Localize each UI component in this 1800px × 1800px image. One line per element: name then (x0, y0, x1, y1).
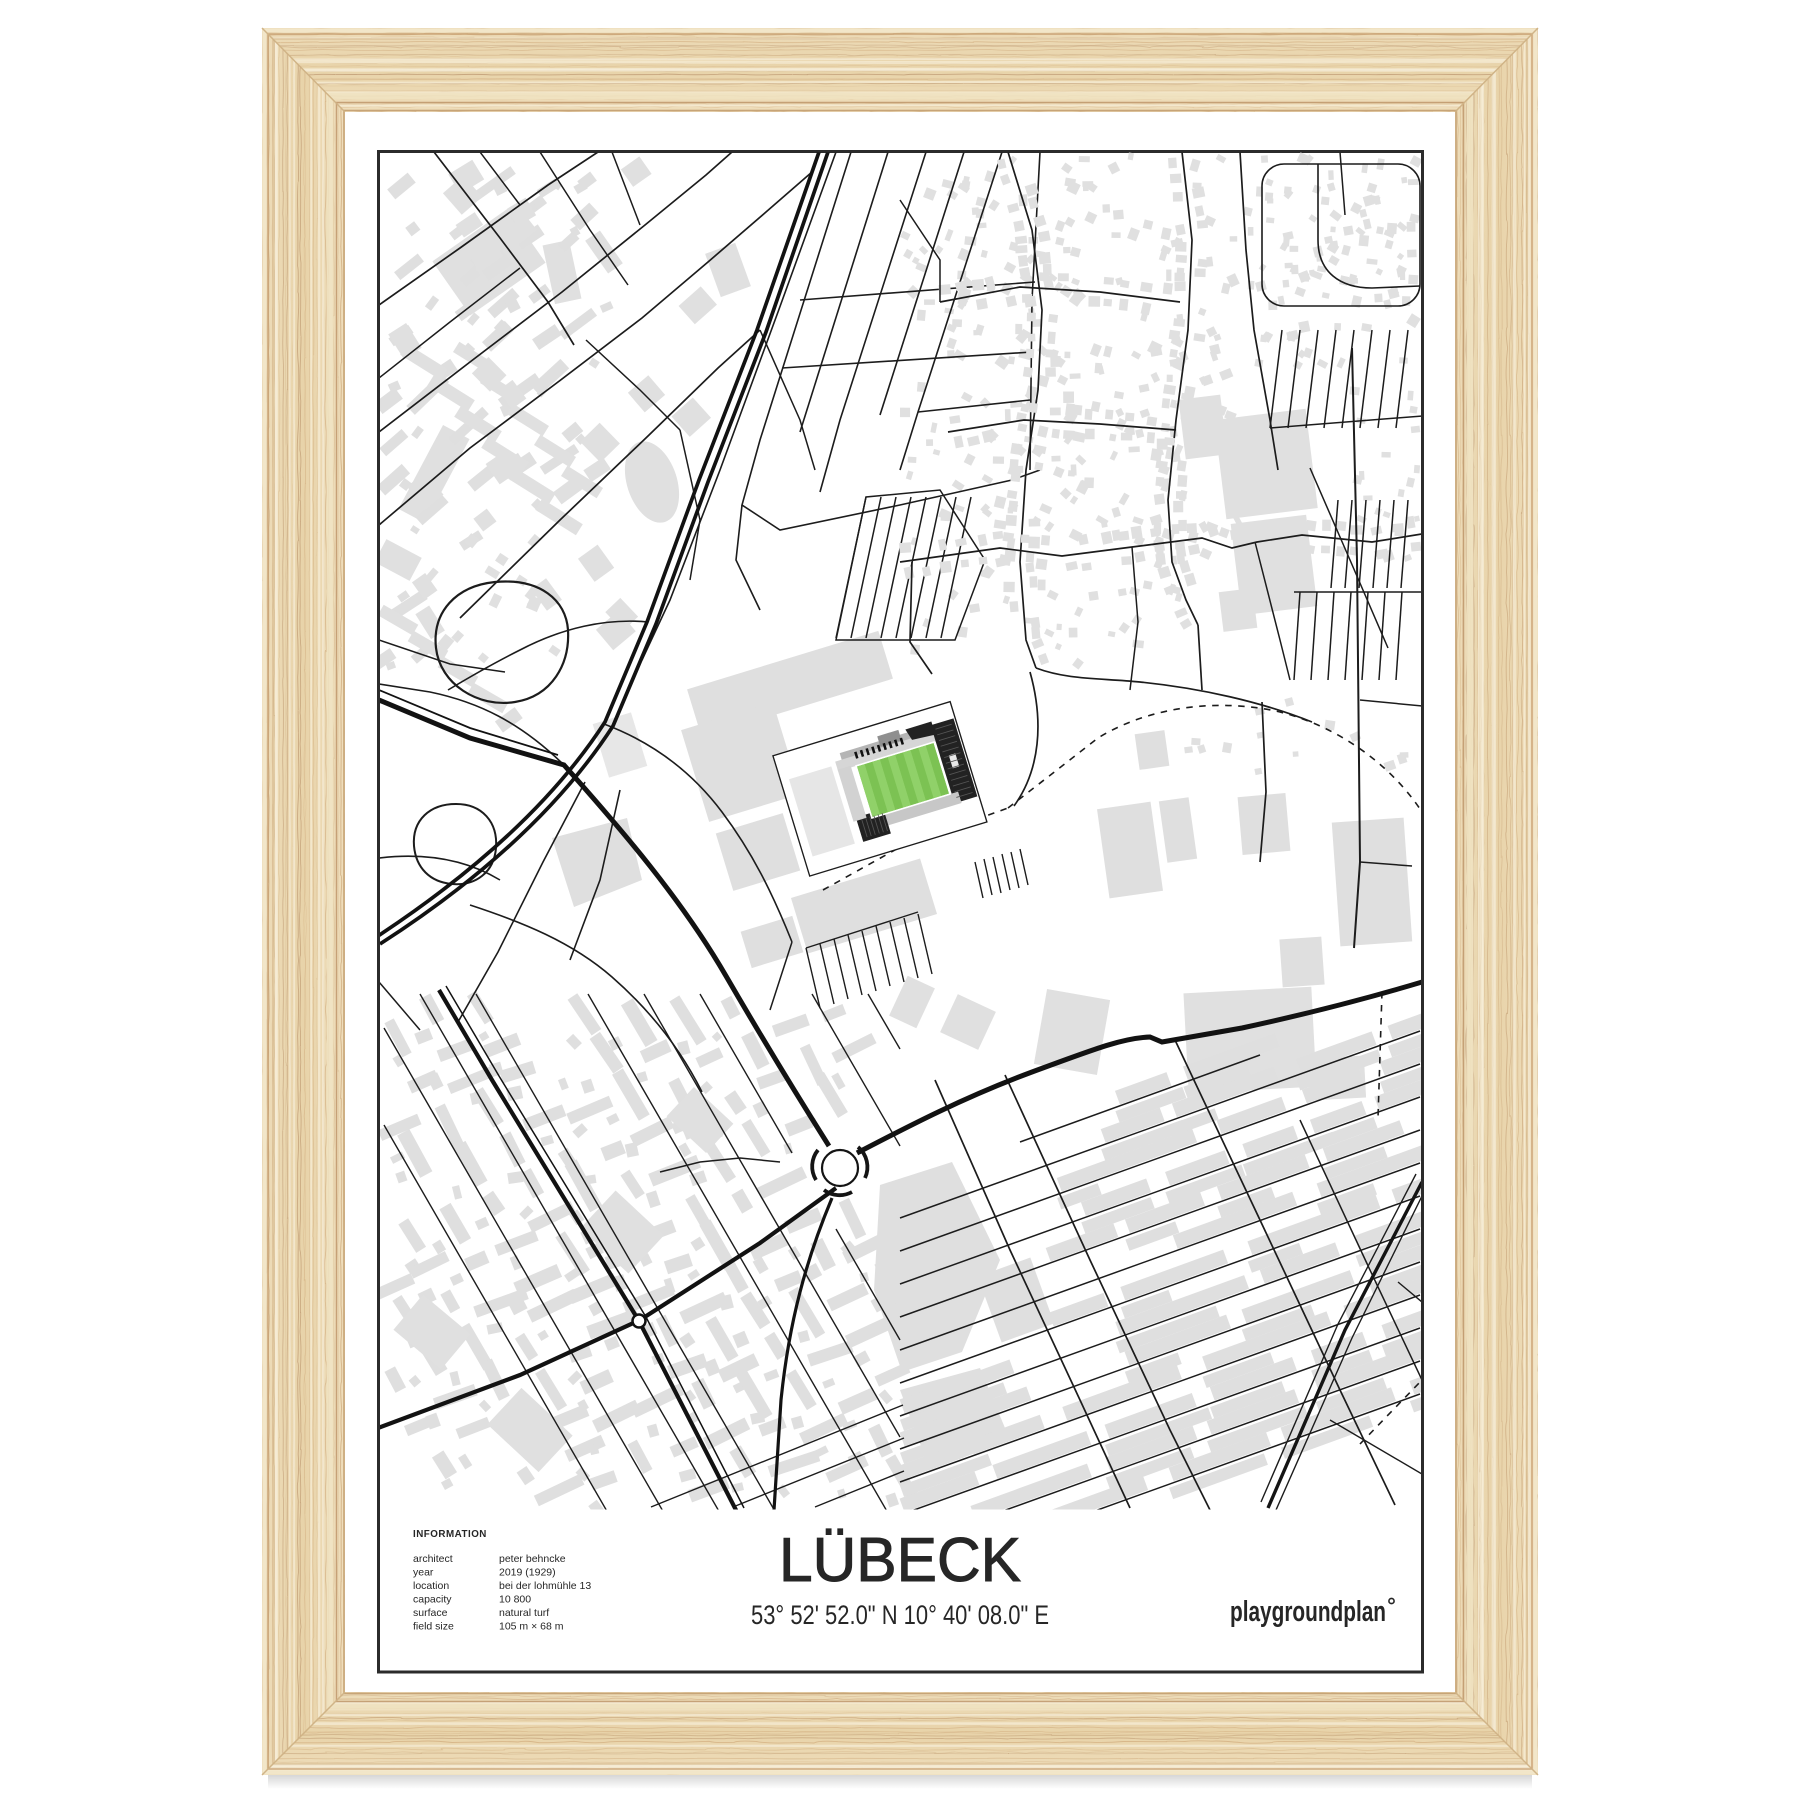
svg-text:natural turf: natural turf (499, 1607, 549, 1619)
svg-text:location: location (413, 1580, 449, 1592)
svg-text:bei der lohmühle 13: bei der lohmühle 13 (499, 1580, 591, 1592)
svg-text:field size: field size (413, 1621, 454, 1633)
svg-text:surface: surface (413, 1607, 448, 1619)
svg-text:architect: architect (413, 1553, 453, 1565)
svg-text:INFORMATION: INFORMATION (413, 1529, 487, 1540)
svg-text:10 800: 10 800 (499, 1594, 531, 1606)
svg-text:2019 (1929): 2019 (1929) (499, 1567, 556, 1579)
svg-text:LÜBECK: LÜBECK (779, 1526, 1021, 1595)
svg-text:capacity: capacity (413, 1594, 452, 1606)
svg-text:playgroundplan: playgroundplan (1230, 1596, 1386, 1628)
svg-text:year: year (413, 1567, 434, 1579)
svg-text:105 m × 68 m: 105 m × 68 m (499, 1621, 564, 1633)
svg-text:53° 52' 52.0" N 10° 40' 08.0": 53° 52' 52.0" N 10° 40' 08.0" E (751, 1600, 1049, 1630)
svg-text:peter behncke: peter behncke (499, 1553, 566, 1565)
